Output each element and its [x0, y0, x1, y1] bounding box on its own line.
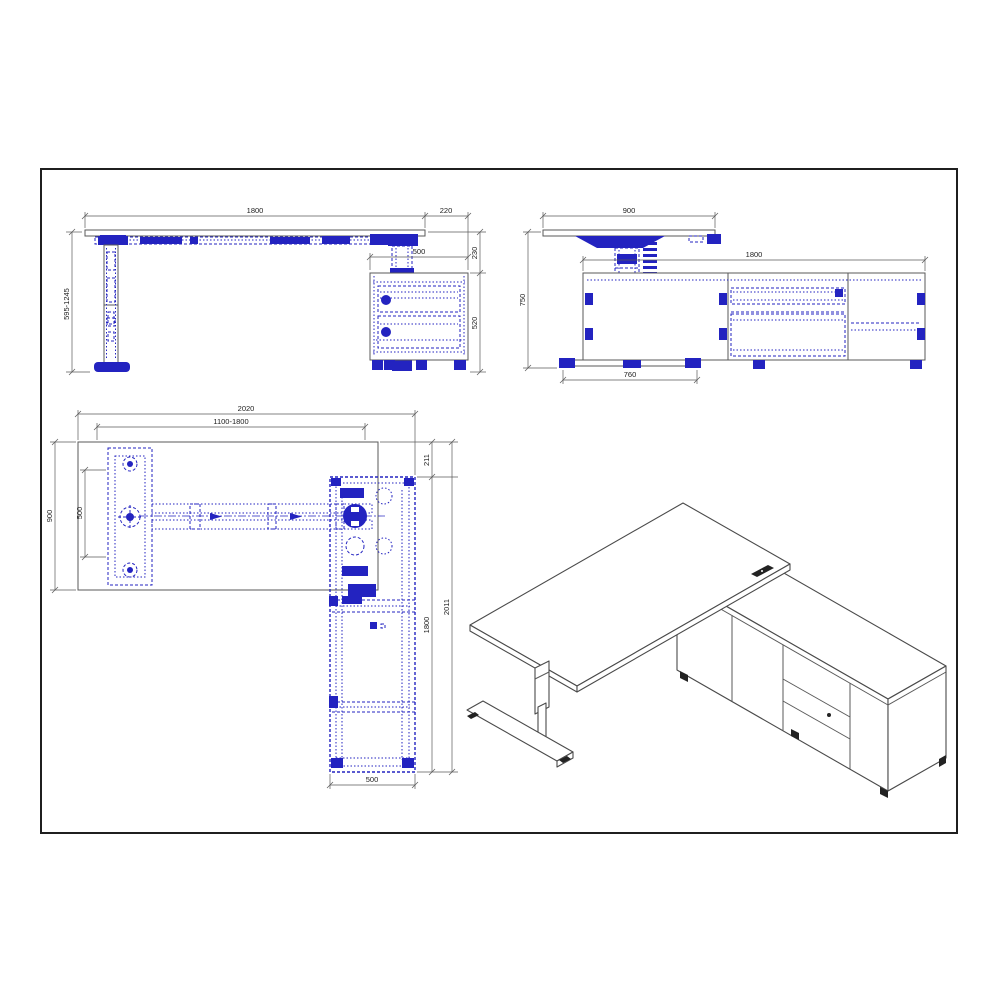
- front-cabinet: [370, 273, 468, 370]
- side-cabinet: [583, 273, 925, 369]
- dim-front-cabinet-width: 500: [413, 247, 426, 256]
- dim-plan-overall-width: 2020: [238, 404, 255, 413]
- dim-side-total-height: 750: [518, 294, 527, 307]
- front-leg-column: [94, 235, 130, 372]
- dim-plan-overall-depth: 2011: [442, 599, 451, 615]
- side-elevation-view: 900 1800 750 760: [505, 190, 955, 395]
- dim-side-cabinet-length: 1800: [746, 250, 763, 259]
- dim-plan-cabinet-depth: 500: [366, 775, 379, 784]
- dim-plan-range: 1100-1800: [213, 417, 248, 426]
- front-elevation-view: 1800 220 500 595-1245 230 520: [40, 190, 500, 390]
- dim-front-desk-width: 1800: [247, 206, 264, 215]
- iso-foot-bar: [467, 701, 573, 761]
- side-desktop: [543, 230, 721, 248]
- dim-plan-rear-offset: 211: [422, 454, 431, 466]
- dim-front-cabinet-height: 520: [470, 317, 479, 330]
- plan-view: 2020 1100-1800 900 500: [40, 400, 470, 800]
- dim-side-desk-depth: 900: [623, 206, 636, 215]
- dim-front-overhang: 220: [440, 206, 453, 215]
- drawing-sheet: 1800 220 500 595-1245 230 520: [0, 0, 1000, 1000]
- side-foot-plate: [559, 358, 701, 368]
- dim-side-foot-length: 760: [624, 370, 637, 379]
- isometric-view: [455, 465, 955, 810]
- front-leg-foot: [94, 362, 130, 372]
- dim-front-top-to-cabinet: 230: [470, 247, 479, 260]
- dim-plan-cabinet-length: 1800: [422, 617, 431, 634]
- dim-plan-desk-depth: 900: [45, 510, 54, 523]
- dim-plan-foot-span: 500: [75, 507, 84, 520]
- dim-front-height-range: 595-1245: [62, 288, 71, 320]
- front-cabinet-feet: [372, 360, 466, 370]
- iso-keyhole: [827, 713, 831, 717]
